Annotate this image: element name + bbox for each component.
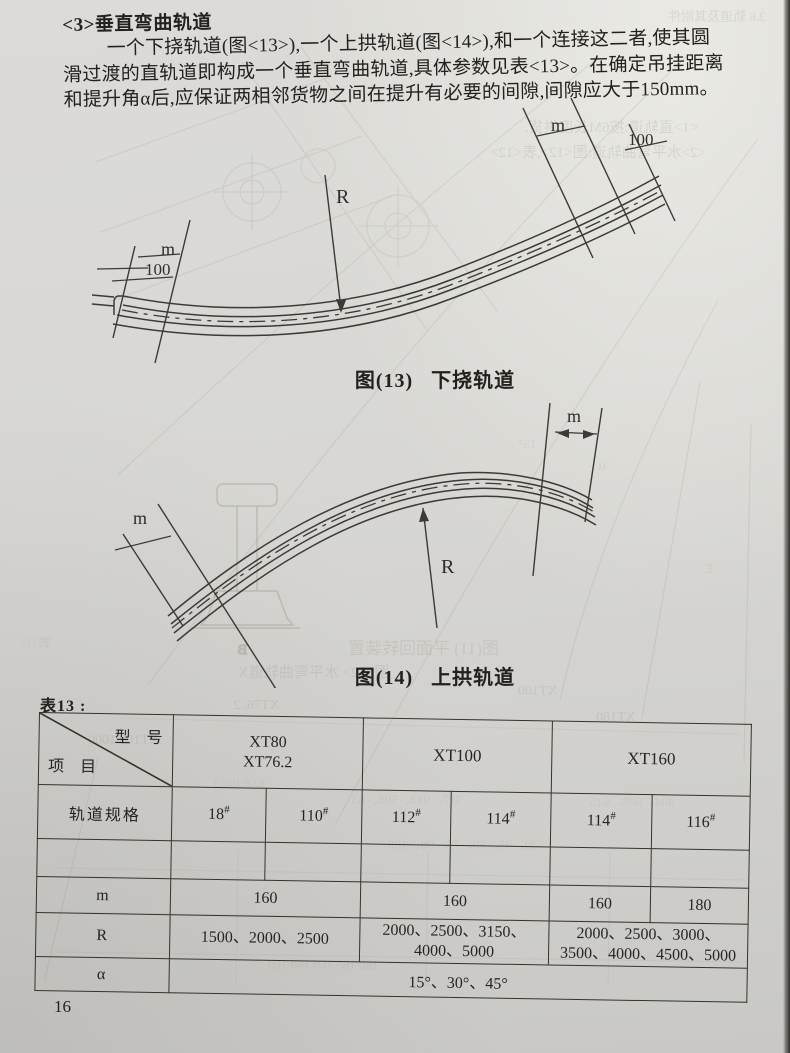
corner-label-item: 项 目	[48, 752, 96, 777]
row-label: 轨道规格	[37, 784, 172, 840]
row-label: m	[36, 876, 171, 914]
m-cell: 180	[650, 887, 749, 925]
radius-label: R	[441, 556, 455, 578]
radius-cell: 2000、2500、3150、 4000、5000	[359, 918, 549, 965]
empty-cell	[171, 841, 266, 881]
radius-arrowhead	[419, 508, 429, 522]
figure14-caption: 图(14) 上拱轨道	[290, 661, 580, 690]
corner-header-cell: 型 号 项 目	[38, 713, 173, 787]
body-text-block: <3>垂直弯曲轨道 一个下挠轨道(图<13>),一个上拱轨道(图<14>),和一…	[62, 0, 736, 113]
dim-label-100-left: 100	[145, 260, 171, 279]
radius-arrowhead	[336, 299, 346, 313]
empty-cell	[550, 847, 652, 887]
spec-cell: 18#	[171, 787, 266, 843]
dim-label-100-right: 100	[628, 130, 654, 149]
radius-cell: 1500、2000、2500	[169, 915, 360, 962]
spec-cell: 114#	[450, 791, 551, 847]
photo-edge-shadow	[783, 0, 790, 1053]
empty-cell	[37, 838, 172, 878]
empty-cell	[651, 849, 750, 889]
bleedthrough-text: XT76. 2	[233, 698, 280, 714]
spec-cell: 110#	[265, 788, 362, 844]
dim-arrowhead	[557, 429, 569, 438]
model-name: XT76.2	[173, 751, 362, 774]
m-cell: 160	[360, 882, 550, 921]
table-header-row: 型 号 项 目 XT80 XT76.2 XT100 XT160	[38, 713, 751, 797]
dim-label-m-left: m	[133, 508, 147, 528]
radius-cell: 2000、2500、3000、 3500、4000、4500、5000	[548, 921, 748, 968]
bleedthrough-text: E	[704, 562, 713, 578]
spec-cell: 114#	[550, 793, 652, 849]
model-name: XT100	[433, 745, 481, 765]
radius-label: R	[336, 186, 350, 208]
figure13-drawing: m 100 R m 100	[85, 98, 705, 388]
empty-cell	[450, 845, 551, 885]
dim-label-m-left: m	[161, 239, 175, 259]
spec-cell: 116#	[651, 795, 750, 851]
model-group-xt160: XT160	[551, 721, 751, 796]
empty-cell	[361, 844, 451, 883]
empty-cell	[265, 842, 362, 882]
model-group-xt80: XT80 XT76.2	[172, 715, 363, 790]
row-label: α	[35, 956, 170, 992]
corner-label-model: 型 号	[114, 723, 162, 748]
figure14-drawing: B m m R	[85, 388, 705, 688]
dim-arrowhead	[583, 430, 595, 439]
page-number: 16	[54, 997, 71, 1017]
bleedthrough-text: 表11:	[22, 632, 51, 651]
spec-cell: 112#	[361, 790, 451, 845]
row-label: R	[35, 912, 170, 958]
bleedthrough-dim-b: B	[238, 643, 247, 658]
m-cell: 160	[170, 879, 361, 918]
parameter-table: 型 号 项 目 XT80 XT76.2 XT100 XT160 轨道规格 18#…	[34, 712, 752, 1003]
model-group-xt100: XT100	[362, 718, 552, 793]
m-cell: 160	[549, 885, 651, 923]
dim-label-m-right: m	[551, 115, 565, 135]
dim-label-m-right: m	[567, 406, 581, 426]
model-name: XT160	[627, 748, 675, 768]
scanned-document-page: 3.6 轨道及其附件 <1>直轨道:按6M长度供货. <2>水平弯曲轨道:图<1…	[0, 0, 790, 1053]
